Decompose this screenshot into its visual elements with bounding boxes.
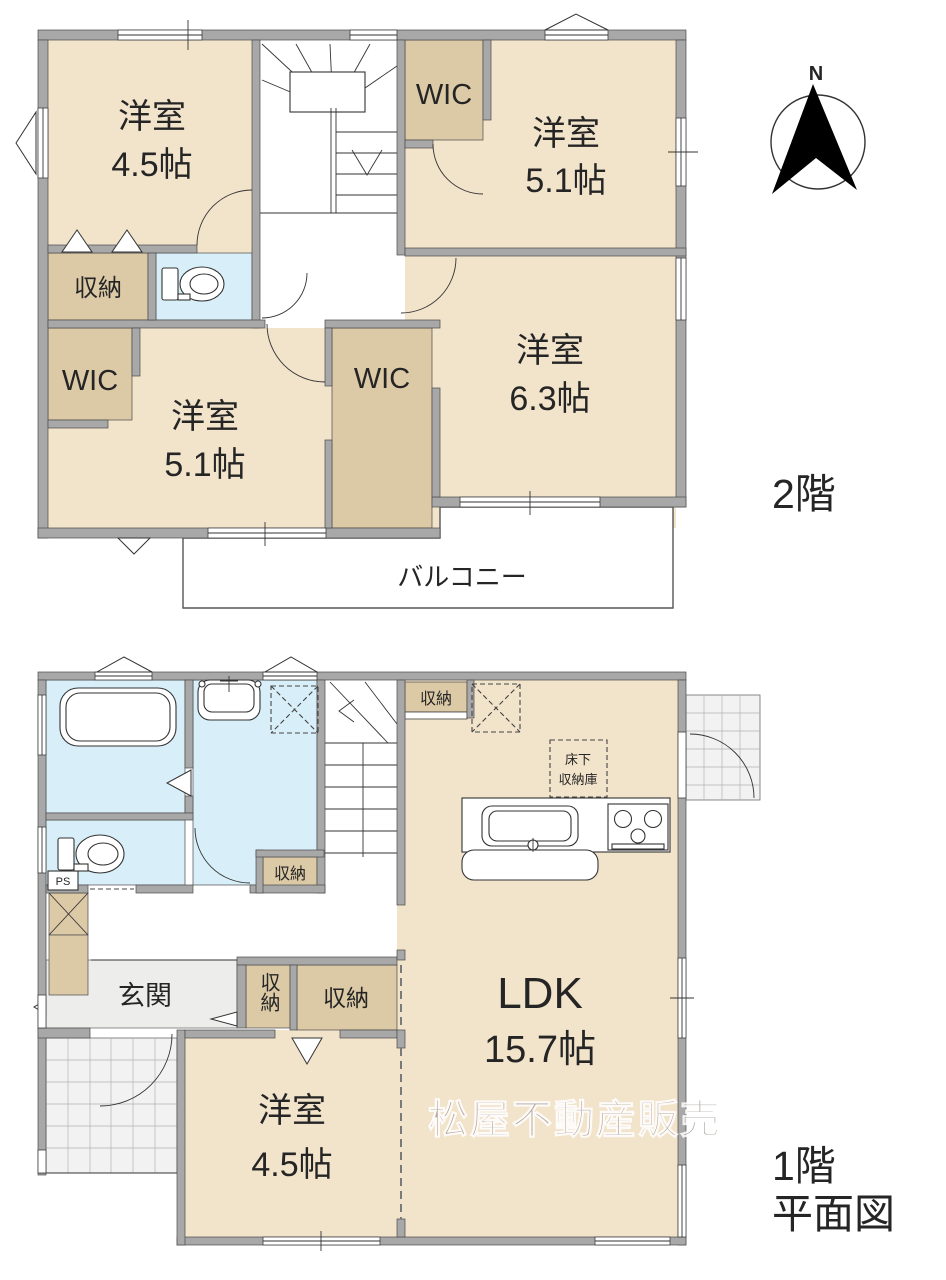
toilet-icon bbox=[162, 267, 224, 301]
shoe-box bbox=[49, 893, 88, 995]
room-label: 洋室 bbox=[532, 115, 600, 153]
floor1-title-line2: 平面図 bbox=[772, 1191, 895, 1237]
wic-label: WIC bbox=[62, 365, 118, 397]
entrance-label: 玄関 bbox=[118, 981, 172, 1011]
kitchen-porch bbox=[686, 695, 760, 800]
watermark: 松屋不動産販売 bbox=[428, 1098, 722, 1142]
room-size: 6.3帖 bbox=[509, 380, 590, 418]
floor1-room45-floor bbox=[185, 1030, 397, 1237]
wic-label: WIC bbox=[354, 363, 410, 395]
closet-label-vertical: 収納 bbox=[257, 972, 280, 1012]
ldk-label: LDK bbox=[497, 969, 583, 1018]
floor2-title: 2階 bbox=[772, 471, 836, 517]
floor2-wic-mid bbox=[332, 328, 432, 528]
ps-label: PS bbox=[56, 876, 71, 888]
closet-label: 収納 bbox=[323, 985, 369, 1011]
room-label: 洋室 bbox=[258, 1092, 326, 1130]
floorplan-drawing: 洋室 4.5帖 WIC 洋室 5.1帖 収納 WIC 洋室 5.1帖 WIC 洋… bbox=[0, 0, 946, 1280]
room-label: 洋室 bbox=[516, 332, 584, 370]
sink-icon bbox=[198, 676, 261, 720]
closet-door bbox=[405, 712, 467, 719]
floor1-ldk-floor bbox=[397, 680, 678, 1237]
room-label: 洋室 bbox=[118, 98, 186, 136]
wic-label: WIC bbox=[416, 79, 472, 111]
floor1-stairs-area bbox=[325, 680, 397, 893]
room-size: 5.1帖 bbox=[525, 162, 606, 200]
floor2-plan: 洋室 4.5帖 WIC 洋室 5.1帖 収納 WIC 洋室 5.1帖 WIC 洋… bbox=[16, 14, 836, 608]
bathtub-icon bbox=[60, 688, 176, 746]
floor1-plan: PS bbox=[34, 657, 895, 1251]
closet-label: 収納 bbox=[420, 690, 452, 708]
room-label: 洋室 bbox=[171, 398, 239, 436]
balcony-label: バルコニー bbox=[397, 562, 526, 592]
ldk-size: 15.7帖 bbox=[484, 1029, 596, 1071]
floorplan-page: 洋室 4.5帖 WIC 洋室 5.1帖 収納 WIC 洋室 5.1帖 WIC 洋… bbox=[0, 0, 946, 1280]
room-size: 5.1帖 bbox=[164, 446, 245, 484]
underfloor-label-1: 床下 bbox=[565, 752, 591, 767]
closet-label: 収納 bbox=[274, 865, 306, 883]
toilet-icon bbox=[58, 835, 124, 873]
floor1-corridor bbox=[88, 893, 397, 960]
underfloor-label-2: 収納庫 bbox=[558, 772, 597, 787]
floor1-title-line1: 1階 bbox=[772, 1143, 836, 1189]
stove-icon bbox=[608, 804, 668, 850]
closet-label: 収納 bbox=[74, 275, 122, 302]
room-size: 4.5帖 bbox=[251, 1146, 332, 1184]
room-size: 4.5帖 bbox=[111, 146, 192, 184]
compass-icon: N bbox=[771, 63, 865, 194]
compass-north-label: N bbox=[809, 63, 823, 85]
